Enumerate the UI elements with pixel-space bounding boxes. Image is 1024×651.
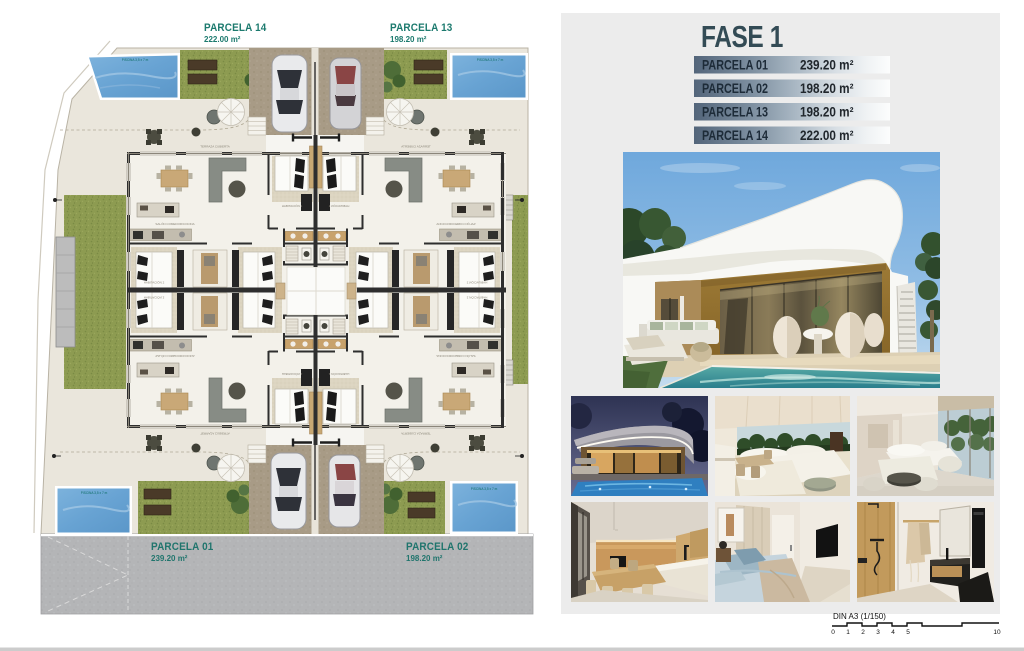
svg-text:0: 0 [831,629,835,636]
svg-text:PISCINA 3,5 x 7 m: PISCINA 3,5 x 7 m [471,487,498,491]
svg-text:198.20 m²: 198.20 m² [800,105,853,120]
svg-text:HABITACIÓN 2: HABITACIÓN 2 [144,280,165,285]
svg-text:PISCINA 3,5 x 7 m: PISCINA 3,5 x 7 m [122,58,149,62]
svg-text:PARCELA 13: PARCELA 13 [390,23,453,34]
svg-text:222.00 m²: 222.00 m² [204,35,241,44]
svg-text:239.20 m²: 239.20 m² [151,554,188,563]
svg-text:PARCELA 02: PARCELA 02 [702,81,768,96]
svg-text:DIN A3 (1/150): DIN A3 (1/150) [833,612,886,621]
svg-text:PISCINA 3,5 x 7 m: PISCINA 3,5 x 7 m [81,491,108,495]
svg-text:HABITACIÓN 1: HABITACIÓN 1 [282,203,303,208]
svg-text:SALÓN COMEDOR/COCINA: SALÓN COMEDOR/COCINA [155,221,194,226]
svg-text:PARCELA 14: PARCELA 14 [702,128,768,143]
svg-text:239.20 m²: 239.20 m² [800,58,853,73]
svg-text:198.20 m²: 198.20 m² [390,35,427,44]
svg-text:TERRAZA CUBIERTA: TERRAZA CUBIERTA [200,145,230,149]
svg-text:PARCELA 01: PARCELA 01 [702,57,768,72]
svg-text:1: 1 [846,629,850,636]
svg-text:PARCELA 14: PARCELA 14 [204,23,267,34]
svg-text:198.20 m²: 198.20 m² [800,81,853,96]
svg-text:PARCELA 02: PARCELA 02 [406,542,469,553]
svg-text:PISCINA 3,5 x 7 m: PISCINA 3,5 x 7 m [477,58,504,62]
svg-text:222.00 m²: 222.00 m² [800,128,853,143]
svg-text:FASE 1: FASE 1 [701,19,783,53]
svg-text:4: 4 [891,629,895,636]
svg-text:PARCELA 01: PARCELA 01 [151,542,214,553]
svg-text:2: 2 [861,629,865,636]
svg-text:3: 3 [876,629,880,636]
svg-text:10: 10 [993,629,1001,636]
svg-text:198.20 m²: 198.20 m² [406,554,443,563]
svg-text:5: 5 [906,629,910,636]
svg-text:PARCELA 13: PARCELA 13 [702,104,768,119]
